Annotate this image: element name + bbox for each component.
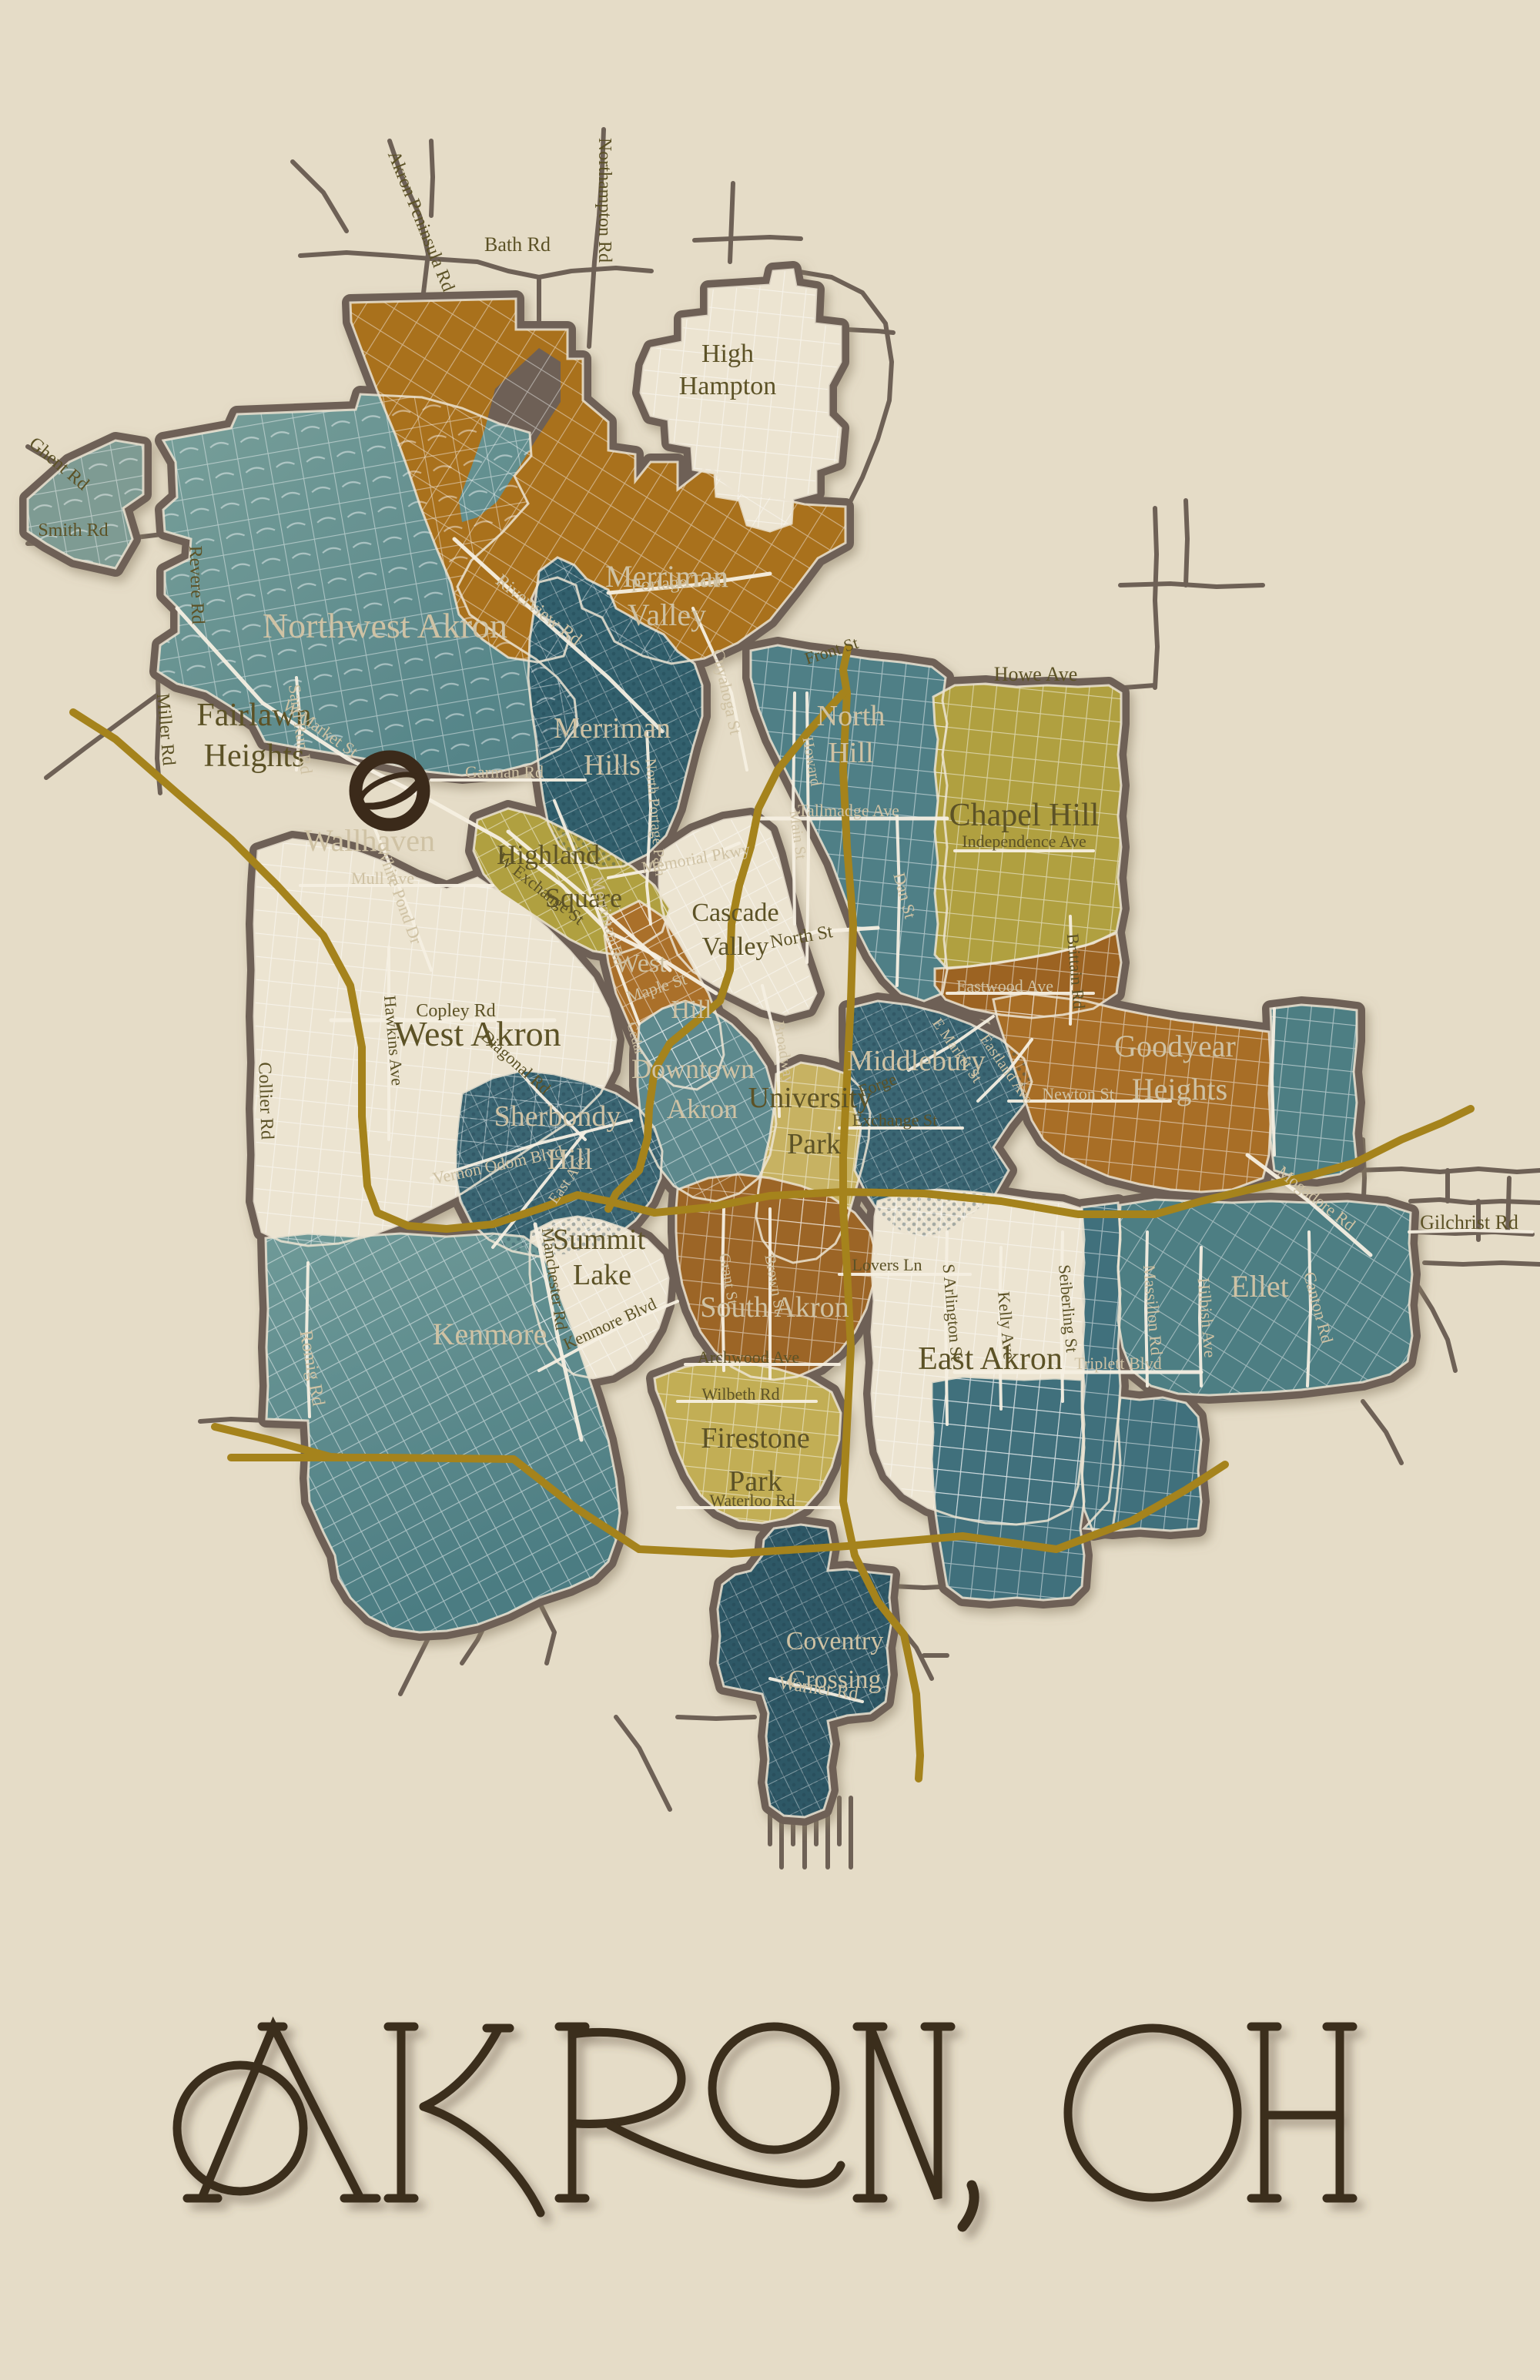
svg-text:Sherbondy: Sherbondy (494, 1100, 621, 1133)
svg-text:Valley: Valley (702, 932, 769, 961)
svg-text:Park: Park (787, 1128, 841, 1160)
svg-text:Wilbeth Rd: Wilbeth Rd (701, 1384, 779, 1404)
svg-text:Copley Rd: Copley Rd (416, 1001, 495, 1021)
svg-text:Ellet: Ellet (1230, 1269, 1289, 1304)
svg-text:Chapel Hill: Chapel Hill (949, 798, 1100, 833)
svg-text:Smith Rd: Smith Rd (38, 521, 108, 541)
svg-text:Hampton: Hampton (679, 372, 777, 400)
svg-text:Gilchrist Rd: Gilchrist Rd (1420, 1211, 1518, 1234)
svg-text:Garman Rd: Garman Rd (465, 762, 544, 782)
svg-text:Archwood Ave: Archwood Ave (698, 1347, 799, 1367)
svg-text:Newton St: Newton St (1042, 1084, 1114, 1103)
svg-text:Tallmadge Ave: Tallmadge Ave (798, 801, 899, 820)
svg-text:Northampton Rd: Northampton Rd (594, 138, 614, 263)
svg-text:Cascade: Cascade (691, 899, 778, 927)
svg-text:Hill: Hill (671, 996, 712, 1024)
svg-text:Heights: Heights (204, 738, 305, 774)
svg-text:Kenmore: Kenmore (433, 1317, 547, 1351)
svg-text:Wallhaven: Wallhaven (304, 823, 435, 858)
svg-text:Hills: Hills (584, 749, 641, 782)
svg-text:Lovers Ln: Lovers Ln (852, 1255, 922, 1274)
svg-text:Revere Rd: Revere Rd (185, 545, 208, 624)
svg-text:Akron: Akron (667, 1093, 738, 1124)
svg-text:Firestone: Firestone (701, 1422, 809, 1454)
svg-text:High: High (701, 340, 754, 368)
svg-text:Hill: Hill (828, 737, 873, 769)
svg-text:Collier Rd: Collier Rd (254, 1062, 276, 1140)
svg-text:Eastwood Ave: Eastwood Ave (956, 976, 1053, 996)
svg-text:Triplett Blvd: Triplett Blvd (1074, 1354, 1162, 1373)
svg-text:Independence Ave: Independence Ave (962, 832, 1086, 851)
svg-text:Coventry: Coventry (786, 1627, 884, 1655)
svg-text:Heights: Heights (1132, 1072, 1227, 1106)
svg-text:Valley: Valley (628, 598, 706, 632)
svg-text:Exchange St: Exchange St (852, 1110, 938, 1130)
svg-text:Lake: Lake (573, 1259, 631, 1291)
svg-text:East Akron: East Akron (918, 1341, 1063, 1377)
svg-text:Merriman: Merriman (554, 712, 671, 745)
svg-text:Howe Ave: Howe Ave (994, 663, 1078, 685)
svg-text:Northwest Akron: Northwest Akron (263, 606, 507, 645)
svg-text:Downtown: Downtown (631, 1053, 755, 1084)
svg-text:Waterloo Rd: Waterloo Rd (709, 1491, 795, 1510)
svg-text:Goodyear: Goodyear (1114, 1029, 1236, 1063)
svg-text:Summit: Summit (553, 1223, 646, 1256)
svg-text:Bath Rd: Bath Rd (484, 233, 551, 256)
svg-text:Mull Ave: Mull Ave (351, 869, 414, 888)
svg-text:North: North (817, 700, 885, 732)
svg-text:University: University (748, 1082, 872, 1114)
